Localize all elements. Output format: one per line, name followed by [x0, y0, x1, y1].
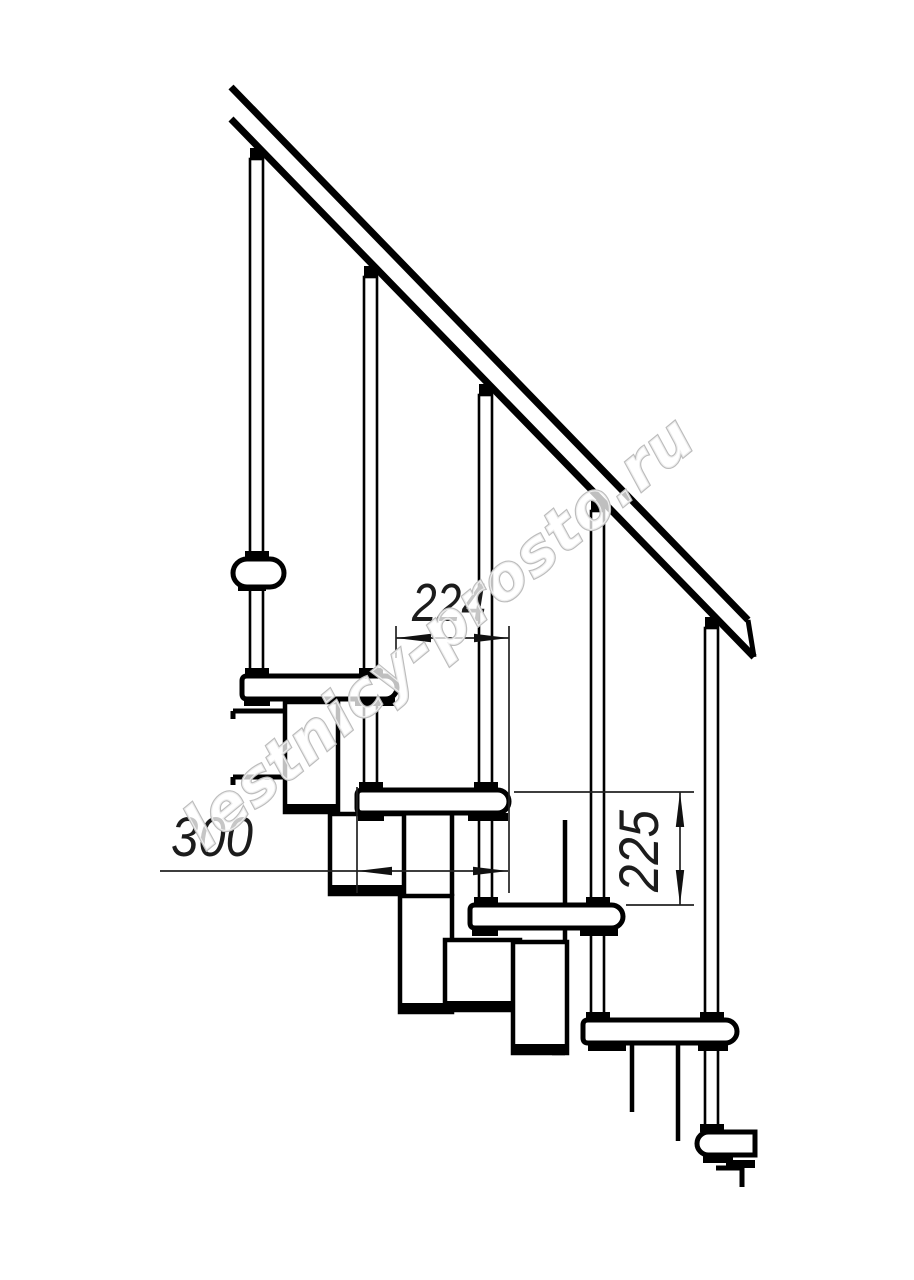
baluster-1	[250, 148, 264, 677]
dimension-225-label: 225	[607, 809, 670, 893]
baluster-5	[705, 617, 719, 1134]
drawing-canvas: 224 300 225 lestnicy-prosto.ru	[0, 0, 914, 1280]
module-5	[513, 942, 567, 1053]
tread-5	[583, 1020, 737, 1043]
tread-6	[697, 1132, 755, 1155]
module-4	[445, 940, 520, 1010]
tread-3	[357, 790, 509, 813]
tread-1	[233, 559, 284, 587]
module-2	[330, 814, 404, 894]
baluster-4	[591, 500, 605, 1021]
floor-step-outline	[716, 1168, 742, 1187]
staircase-technical-drawing: 224 300 225 lestnicy-prosto.ru	[0, 0, 914, 1280]
baluster-3	[479, 384, 493, 906]
arrow-up-icon	[676, 792, 684, 827]
tread-4	[470, 905, 623, 928]
arrow-down-icon	[676, 870, 684, 905]
